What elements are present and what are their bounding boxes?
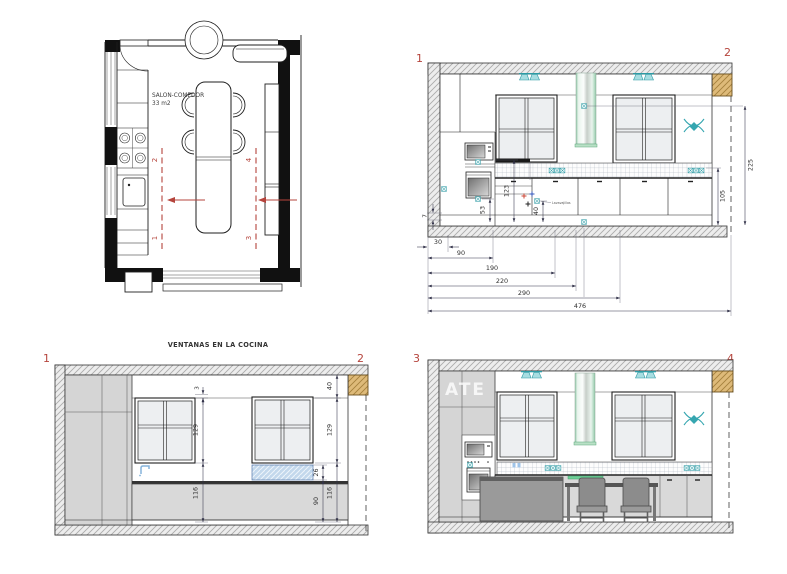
dim-476: 476 bbox=[574, 302, 586, 310]
elevation-3-4-panel: 3 4 ATE bbox=[405, 335, 770, 560]
radiator bbox=[252, 465, 313, 480]
extractor-hood bbox=[575, 73, 597, 147]
elevwin-right-window bbox=[252, 397, 313, 463]
bottom-window bbox=[163, 271, 260, 278]
tile-backsplash bbox=[495, 163, 712, 178]
dim-53: 53 bbox=[479, 206, 487, 214]
outlet-marker bbox=[535, 199, 540, 204]
outlet-strip bbox=[549, 168, 565, 173]
outlet-strip bbox=[688, 168, 704, 173]
microwave-icon bbox=[465, 442, 492, 457]
outlet-marker bbox=[476, 197, 481, 202]
floor-plan: 2 1 4 3 SALON-COMEDOR 33 m2 bbox=[95, 25, 315, 295]
entry-door bbox=[120, 40, 148, 71]
outlet-marker bbox=[468, 463, 473, 468]
elev12-right-window bbox=[613, 95, 675, 163]
island-counter bbox=[480, 477, 563, 521]
dining-table bbox=[196, 82, 231, 233]
elevation-title: VENTANAS EN LA COCINA bbox=[168, 341, 269, 349]
outlet-strip bbox=[545, 466, 561, 471]
dim-123: 123 bbox=[503, 185, 511, 197]
elev12-marker-2: 2 bbox=[724, 46, 731, 59]
dim-105: 105 bbox=[719, 190, 727, 202]
extractor-hood bbox=[574, 373, 596, 445]
pillar-section bbox=[348, 375, 368, 395]
dishwasher-note: Lavavajillas bbox=[552, 201, 571, 205]
dim-7: 7 bbox=[423, 214, 429, 218]
elevwin-tall-cabinet bbox=[65, 375, 132, 525]
pillar-section bbox=[712, 74, 732, 96]
room-label: SALON-COMEDOR bbox=[152, 93, 204, 99]
window-sill-dark bbox=[496, 159, 530, 163]
cad-drawing-sheet: 2 1 4 3 SALON-COMEDOR 33 m2 1 2 bbox=[0, 0, 787, 574]
sofa bbox=[233, 45, 287, 62]
dim-220: 220 bbox=[496, 277, 508, 285]
tile-backsplash bbox=[497, 462, 712, 475]
dim-right-116: 116 bbox=[326, 487, 334, 499]
section-label-4: 4 bbox=[245, 157, 253, 162]
oven-icon bbox=[466, 172, 491, 198]
cooktop-icon bbox=[117, 128, 148, 168]
kitchen-counter bbox=[117, 70, 148, 255]
floor-plan-panel: 2 1 4 3 SALON-COMEDOR 33 m2 bbox=[95, 25, 315, 295]
dim-gap3: 3 bbox=[195, 386, 201, 390]
hood-outlet-marker bbox=[582, 104, 587, 109]
outlet-marker bbox=[442, 187, 447, 192]
dim-right-129: 129 bbox=[326, 424, 334, 436]
elevwin-left-window bbox=[135, 398, 195, 463]
outlet-strip bbox=[684, 466, 700, 471]
microwave-icon bbox=[465, 143, 493, 160]
dim-190: 190 bbox=[486, 264, 498, 272]
dim-225: 225 bbox=[747, 159, 755, 171]
elevation-ventanas-panel: VENTANAS EN LA COCINA 1 2 bbox=[35, 335, 405, 560]
pillar-section bbox=[712, 371, 733, 392]
dim-right-40: 40 bbox=[326, 382, 334, 390]
dim-90: 90 bbox=[457, 249, 465, 257]
section-label-1: 1 bbox=[151, 236, 159, 240]
elev34-marker-3: 3 bbox=[413, 352, 420, 365]
outlet-marker bbox=[476, 160, 481, 165]
elevation-1-2: 1 2 bbox=[410, 40, 780, 325]
dim-90: 90 bbox=[312, 497, 320, 505]
watermark-text: ATE bbox=[445, 380, 486, 400]
dim-left-116: 116 bbox=[192, 487, 200, 499]
elevwin-marker-1: 1 bbox=[43, 352, 50, 365]
elevation-1-2-panel: 1 2 bbox=[410, 40, 780, 325]
dim-left-129: 129 bbox=[192, 424, 200, 436]
dim-30: 30 bbox=[434, 238, 442, 246]
round-niche bbox=[185, 21, 223, 59]
elev12-left-window bbox=[496, 95, 557, 162]
section-label-2: 2 bbox=[151, 158, 159, 162]
section-label-3: 3 bbox=[245, 236, 253, 240]
room-area: 33 m2 bbox=[152, 101, 171, 107]
elev34-left-window bbox=[497, 392, 557, 460]
dim-40: 40 bbox=[532, 207, 540, 215]
plinth-outlet-marker bbox=[582, 220, 587, 225]
sink-icon bbox=[123, 178, 145, 206]
elevation-ventanas: VENTANAS EN LA COCINA 1 2 bbox=[35, 335, 405, 560]
elev34-right-window bbox=[612, 392, 675, 460]
dim-26: 26 bbox=[312, 468, 320, 476]
side-shelf bbox=[265, 84, 279, 235]
dim-290: 290 bbox=[518, 289, 530, 297]
elevation-3-4: 3 4 ATE bbox=[405, 335, 770, 560]
elev12-marker-1: 1 bbox=[416, 52, 423, 65]
elevwin-marker-2: 2 bbox=[357, 352, 364, 365]
